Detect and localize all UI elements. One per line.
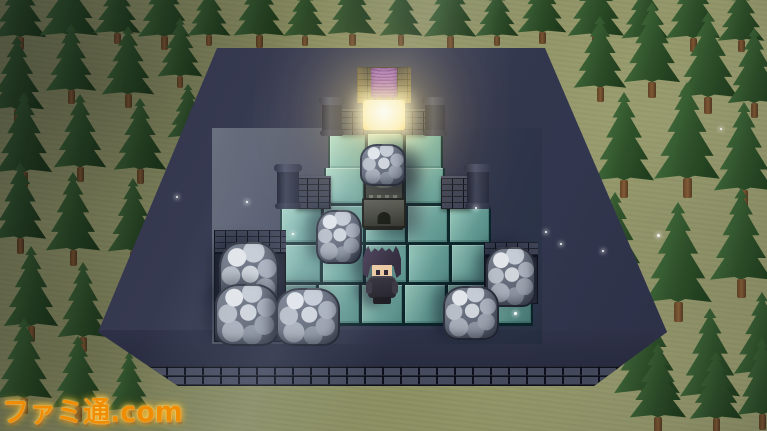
sparkle-particle [176,196,178,198]
sparkle-particle [475,207,477,209]
sparkle-particle [560,243,562,245]
sparkle-particle [720,128,722,130]
sparkle-particle [602,250,604,252]
sparkle-particle [292,233,294,235]
sparkle-particle [657,234,660,237]
sparkle-particle [246,201,248,203]
sparkle-particle [545,231,547,233]
sparkle-particle [514,312,517,315]
famitsu-watermark: ファミ通.com [2,389,183,430]
game-viewport[interactable]: ファミ通.com [0,0,767,431]
sparkle-particles [0,0,767,431]
